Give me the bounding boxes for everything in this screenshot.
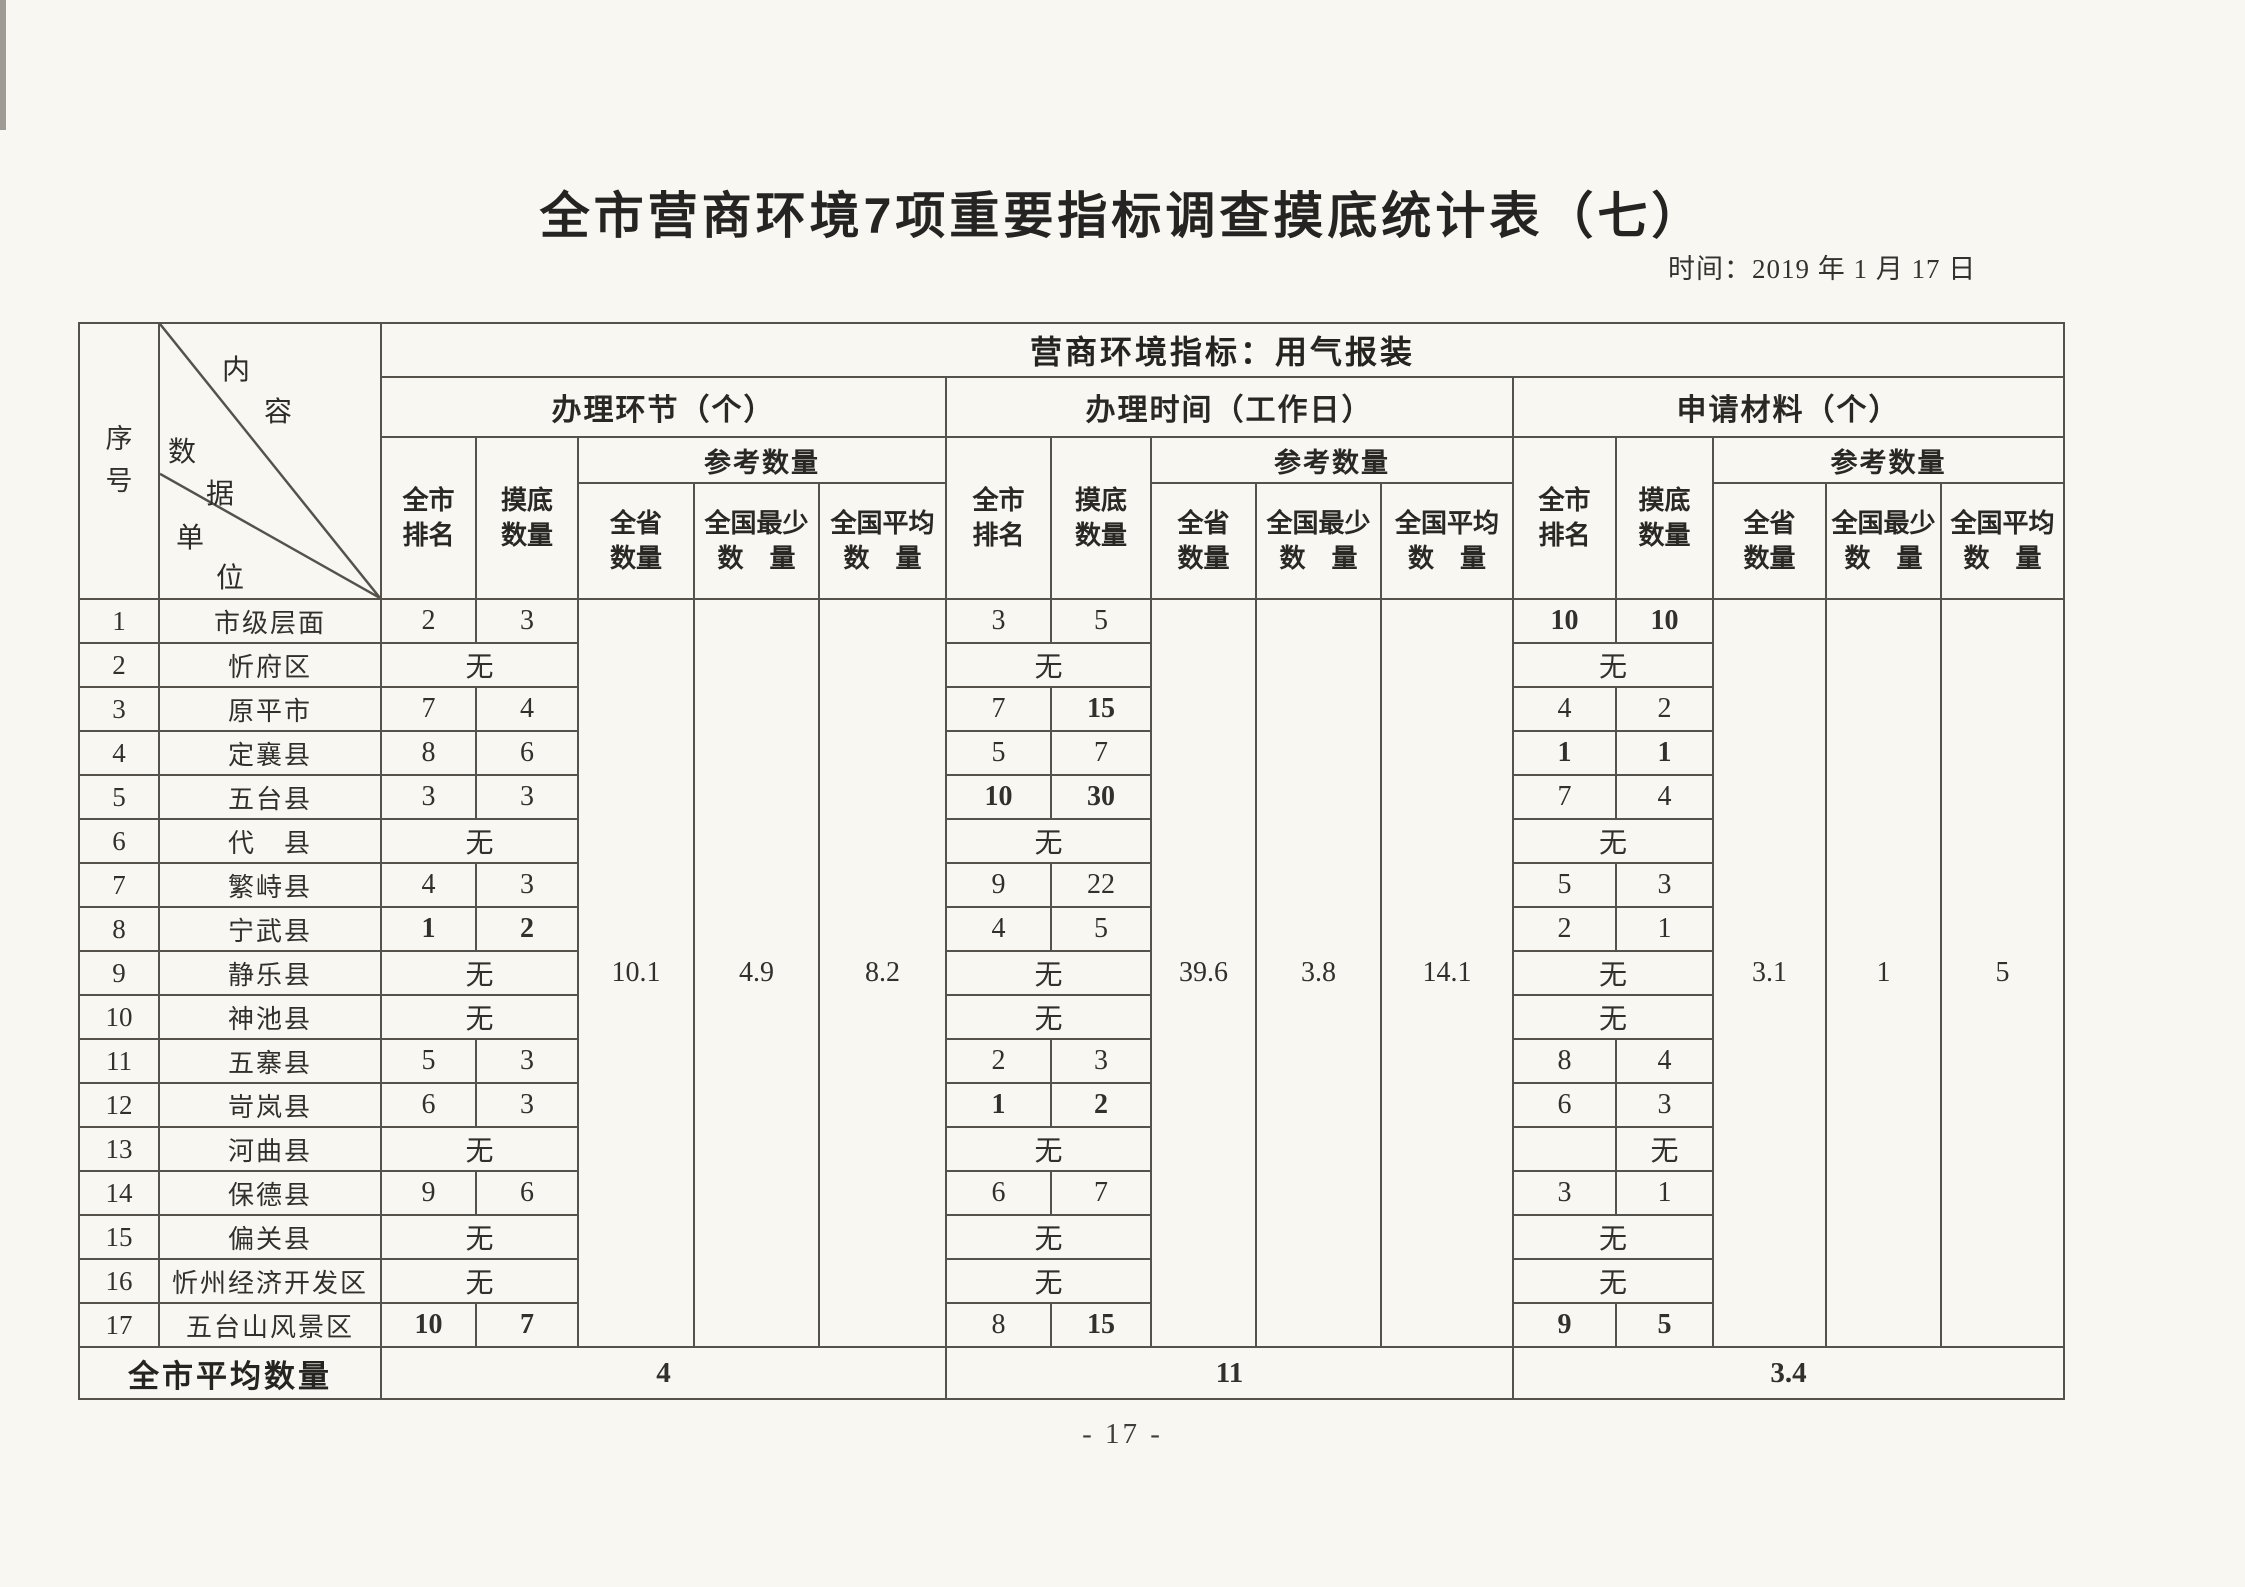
none-cell: 无 [1513, 819, 1713, 863]
rank-cell: 1 [381, 907, 476, 951]
row-no-cell: 5 [79, 775, 159, 819]
rank-cell: 4 [1513, 687, 1616, 731]
province-header-cell: 全省 数量 [1151, 483, 1256, 599]
rank-cell: 2 [946, 1039, 1051, 1083]
none-cell: 无 [946, 951, 1151, 995]
diag-char-data-1: 数 [168, 430, 196, 470]
none-cell: 无 [946, 1259, 1151, 1303]
survey-header-cell: 摸底 数量 [1616, 437, 1713, 599]
survey-cell: 4 [1616, 775, 1713, 819]
rank-cell: 3 [1513, 1171, 1616, 1215]
unit-name-cell: 代 县 [159, 819, 381, 863]
row-no-cell: 11 [79, 1039, 159, 1083]
unit-name-cell: 市级层面 [159, 599, 381, 643]
report-date: 时间：2019 年 1 月 17 日 [1668, 247, 1976, 286]
page-number: - 17 - [0, 1418, 2245, 1451]
survey-cell: 3 [1616, 863, 1713, 907]
rank-cell: 6 [946, 1171, 1051, 1215]
unit-name-cell: 忻府区 [159, 643, 381, 687]
unit-name-cell: 河曲县 [159, 1127, 381, 1171]
province-header-cell: 全省 数量 [1713, 483, 1826, 599]
unit-name-cell: 神池县 [159, 995, 381, 1039]
group-header-time: 办理时间（工作日） [946, 377, 1513, 437]
survey-cell: 5 [1051, 599, 1151, 643]
survey-cell: 7 [1051, 1171, 1151, 1215]
reference-value-cell: 4.9 [694, 599, 819, 1347]
page-title: 全市营商环境7项重要指标调查摸底统计表（七） [0, 176, 2245, 248]
reference-value-cell: 3.8 [1256, 599, 1381, 1347]
survey-cell: 22 [1051, 863, 1151, 907]
diag-char-unit-1: 单 [176, 516, 204, 556]
none-cell: 无 [946, 1215, 1151, 1259]
survey-cell: 2 [476, 907, 578, 951]
row-no-cell: 4 [79, 731, 159, 775]
none-cell: 无 [1513, 951, 1713, 995]
rank-cell: 8 [381, 731, 476, 775]
none-cell: 无 [1513, 643, 1713, 687]
rank-cell: 8 [1513, 1039, 1616, 1083]
rank-cell: 1 [946, 1083, 1051, 1127]
rank-cell [1513, 1127, 1616, 1171]
stats-table: 序 号 内 容 数 据 单 位 营商环境指标：用气报装 办理环节（个） 办理时间… [78, 322, 2065, 1400]
survey-cell: 3 [1051, 1039, 1151, 1083]
unit-name-cell: 五台山风景区 [159, 1303, 381, 1347]
unit-name-cell: 偏关县 [159, 1215, 381, 1259]
unit-name-cell: 定襄县 [159, 731, 381, 775]
province-header-cell: 全省 数量 [578, 483, 694, 599]
none-cell: 无 [381, 951, 578, 995]
indicator-title-cell: 营商环境指标：用气报装 [381, 323, 2064, 377]
rank-cell: 10 [1513, 599, 1616, 643]
survey-cell: 1 [1616, 1171, 1713, 1215]
survey-cell: 1 [1616, 907, 1713, 951]
row-no-cell: 17 [79, 1303, 159, 1347]
rank-cell: 4 [946, 907, 1051, 951]
rank-cell: 9 [946, 863, 1051, 907]
reference-value-cell: 10.1 [578, 599, 694, 1347]
group-header-steps: 办理环节（个） [381, 377, 946, 437]
national-avg-header-cell: 全国平均 数 量 [819, 483, 946, 599]
reference-value-cell: 8.2 [819, 599, 946, 1347]
reference-header-cell: 参考数量 [1713, 437, 2064, 483]
survey-cell: 2 [1051, 1083, 1151, 1127]
survey-cell: 4 [1616, 1039, 1713, 1083]
rank-cell: 6 [381, 1083, 476, 1127]
rank-header-cell: 全市 排名 [1513, 437, 1616, 599]
row-no-cell: 15 [79, 1215, 159, 1259]
average-value-cell: 11 [946, 1347, 1513, 1399]
reference-value-cell: 3.1 [1713, 599, 1826, 1347]
reference-value-cell: 39.6 [1151, 599, 1256, 1347]
reference-value-cell: 14.1 [1381, 599, 1513, 1347]
group-header-materials: 申请材料（个） [1513, 377, 2064, 437]
none-cell: 无 [946, 1127, 1151, 1171]
none-cell: 无 [381, 1127, 578, 1171]
rank-cell: 1 [1513, 731, 1616, 775]
unit-name-cell: 五台县 [159, 775, 381, 819]
rank-cell: 3 [946, 599, 1051, 643]
unit-name-cell: 宁武县 [159, 907, 381, 951]
rank-cell: 3 [381, 775, 476, 819]
rank-cell: 5 [1513, 863, 1616, 907]
survey-cell: 3 [476, 775, 578, 819]
survey-cell: 7 [476, 1303, 578, 1347]
none-cell: 无 [381, 819, 578, 863]
survey-header-cell: 摸底 数量 [476, 437, 578, 599]
rank-cell: 9 [381, 1171, 476, 1215]
row-no-cell: 7 [79, 863, 159, 907]
diag-char-content-2: 容 [264, 390, 292, 430]
none-cell: 无 [381, 995, 578, 1039]
rank-cell: 10 [381, 1303, 476, 1347]
rank-header-cell: 全市 排名 [946, 437, 1051, 599]
diag-char-content-1: 内 [222, 348, 250, 388]
survey-cell: 4 [476, 687, 578, 731]
survey-cell: 3 [476, 1039, 578, 1083]
row-no-cell: 12 [79, 1083, 159, 1127]
none-cell: 无 [946, 643, 1151, 687]
scan-artifact [0, 0, 6, 130]
survey-cell: 7 [1051, 731, 1151, 775]
unit-name-cell: 静乐县 [159, 951, 381, 995]
none-cell: 无 [381, 1259, 578, 1303]
survey-cell: 15 [1051, 1303, 1151, 1347]
rank-cell: 8 [946, 1303, 1051, 1347]
row-no-cell: 16 [79, 1259, 159, 1303]
national-avg-header-cell: 全国平均 数 量 [1941, 483, 2064, 599]
survey-cell: 3 [476, 863, 578, 907]
survey-header-cell: 摸底 数量 [1051, 437, 1151, 599]
survey-cell: 3 [1616, 1083, 1713, 1127]
row-no-cell: 10 [79, 995, 159, 1039]
unit-name-cell: 五寨县 [159, 1039, 381, 1083]
row-no-cell: 2 [79, 643, 159, 687]
rank-cell: 9 [1513, 1303, 1616, 1347]
row-no-cell: 9 [79, 951, 159, 995]
survey-cell: 6 [476, 731, 578, 775]
row-no-cell: 1 [79, 599, 159, 643]
diag-char-unit-2: 位 [216, 556, 244, 596]
unit-name-cell: 保德县 [159, 1171, 381, 1215]
survey-cell: 2 [1616, 687, 1713, 731]
rank-cell: 5 [946, 731, 1051, 775]
content-unit-diagonal-cell: 内 容 数 据 单 位 [159, 323, 381, 599]
rank-cell: 6 [1513, 1083, 1616, 1127]
serial-header-cell: 序 号 [79, 323, 159, 599]
survey-cell: 无 [1616, 1127, 1713, 1171]
row-no-cell: 3 [79, 687, 159, 731]
average-value-cell: 4 [381, 1347, 946, 1399]
survey-cell: 30 [1051, 775, 1151, 819]
none-cell: 无 [1513, 1215, 1713, 1259]
survey-cell: 3 [476, 599, 578, 643]
survey-cell: 5 [1616, 1303, 1713, 1347]
survey-cell: 5 [1051, 907, 1151, 951]
survey-cell: 6 [476, 1171, 578, 1215]
rank-cell: 7 [946, 687, 1051, 731]
average-label-cell: 全市平均数量 [79, 1347, 381, 1399]
table-row: 1 市级层面 2 3 10.1 4.9 8.2 3 5 39.6 3.8 14.… [79, 599, 2064, 643]
none-cell: 无 [1513, 1259, 1713, 1303]
national-min-header-cell: 全国最少 数 量 [1256, 483, 1381, 599]
rank-cell: 2 [381, 599, 476, 643]
none-cell: 无 [381, 643, 578, 687]
national-min-header-cell: 全国最少 数 量 [694, 483, 819, 599]
none-cell: 无 [1513, 995, 1713, 1039]
row-no-cell: 14 [79, 1171, 159, 1215]
national-avg-header-cell: 全国平均 数 量 [1381, 483, 1513, 599]
rank-cell: 4 [381, 863, 476, 907]
rank-header-cell: 全市 排名 [381, 437, 476, 599]
header-row-indicator: 序 号 内 容 数 据 单 位 营商环境指标：用气报装 [79, 323, 2064, 377]
survey-cell: 10 [1616, 599, 1713, 643]
row-no-cell: 8 [79, 907, 159, 951]
rank-cell: 5 [381, 1039, 476, 1083]
survey-cell: 3 [476, 1083, 578, 1127]
none-cell: 无 [946, 819, 1151, 863]
row-no-cell: 6 [79, 819, 159, 863]
unit-name-cell: 繁峙县 [159, 863, 381, 907]
national-min-header-cell: 全国最少 数 量 [1826, 483, 1941, 599]
diag-char-data-2: 据 [206, 472, 234, 512]
reference-header-cell: 参考数量 [578, 437, 946, 483]
survey-cell: 1 [1616, 731, 1713, 775]
reference-header-cell: 参考数量 [1151, 437, 1513, 483]
reference-value-cell: 1 [1826, 599, 1941, 1347]
rank-cell: 2 [1513, 907, 1616, 951]
rank-cell: 7 [1513, 775, 1616, 819]
survey-cell: 15 [1051, 687, 1151, 731]
rank-cell: 7 [381, 687, 476, 731]
unit-name-cell: 岢岚县 [159, 1083, 381, 1127]
rank-cell: 10 [946, 775, 1051, 819]
average-row: 全市平均数量 4 11 3.4 [79, 1347, 2064, 1399]
unit-name-cell: 原平市 [159, 687, 381, 731]
reference-value-cell: 5 [1941, 599, 2064, 1347]
none-cell: 无 [946, 995, 1151, 1039]
row-no-cell: 13 [79, 1127, 159, 1171]
average-value-cell: 3.4 [1513, 1347, 2064, 1399]
none-cell: 无 [381, 1215, 578, 1259]
unit-name-cell: 忻州经济开发区 [159, 1259, 381, 1303]
